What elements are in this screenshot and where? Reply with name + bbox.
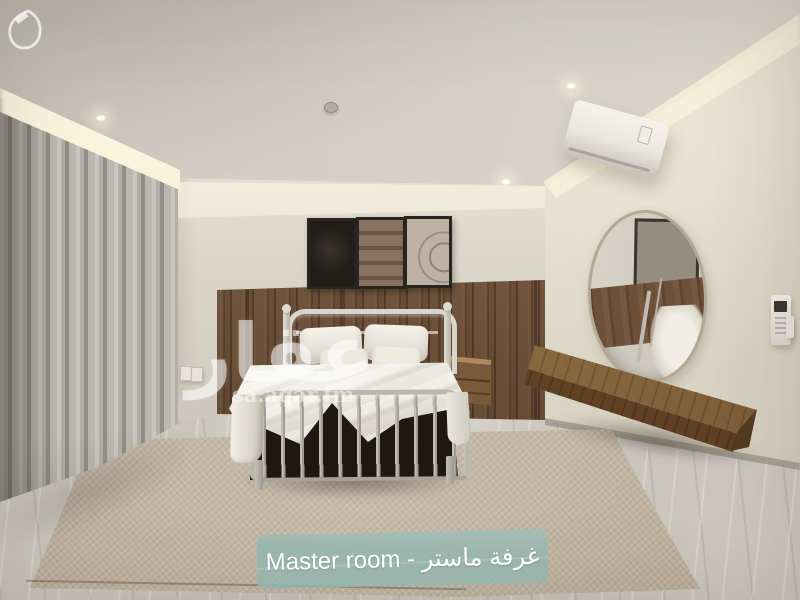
ceiling-spotlight-4 [566,83,576,89]
art-frame-light [404,216,452,288]
caption-text: Master room - غرفة ماستر [265,541,539,576]
aqar-logo-icon [6,7,45,58]
art-frame-dark [307,218,357,289]
bed-leg-left [255,460,263,490]
smoke-detector [324,102,338,113]
caption-bar: Master room - غرفة ماستر [256,529,548,590]
watermark-site-text: sa.aqar.fm [232,382,372,408]
mirror-reflection-bed [648,303,711,386]
ceiling-spotlight-1 [96,115,106,121]
bed-leg-right [446,456,454,484]
bedroom-listing-photo: عقار sa.aqar.fm Master room - غرفة ماستر [0,0,800,600]
duvet-drape-right [446,392,470,445]
art-frame-brown [356,217,406,289]
headboard-knob-right [443,302,452,311]
ac-remote-holder [786,316,794,338]
ceiling-spotlight-3 [501,179,511,185]
